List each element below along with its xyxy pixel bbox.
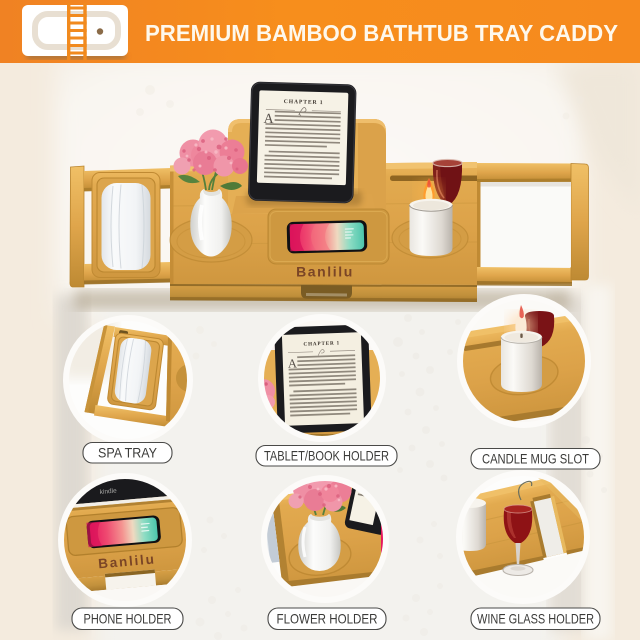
svg-text:PREMIUM BAMBOO BATHTUB TRAY CA: PREMIUM BAMBOO BATHTUB TRAY CADDY: [145, 20, 618, 46]
svg-text:TABLET/BOOK HOLDER: TABLET/BOOK HOLDER: [264, 448, 389, 464]
svg-text:CHAPTER 1: CHAPTER 1: [303, 340, 340, 347]
svg-text:WINE GLASS HOLDER: WINE GLASS HOLDER: [477, 611, 594, 627]
svg-text:FLOWER HOLDER: FLOWER HOLDER: [277, 611, 378, 627]
svg-text:Banlilu: Banlilu: [296, 264, 354, 280]
svg-text:PHONE HOLDER: PHONE HOLDER: [84, 611, 172, 627]
svg-text:SPA TRAY: SPA TRAY: [98, 445, 158, 461]
svg-text:CANDLE MUG SLOT: CANDLE MUG SLOT: [482, 451, 589, 467]
svg-text:CHAPTER 1: CHAPTER 1: [284, 99, 324, 106]
